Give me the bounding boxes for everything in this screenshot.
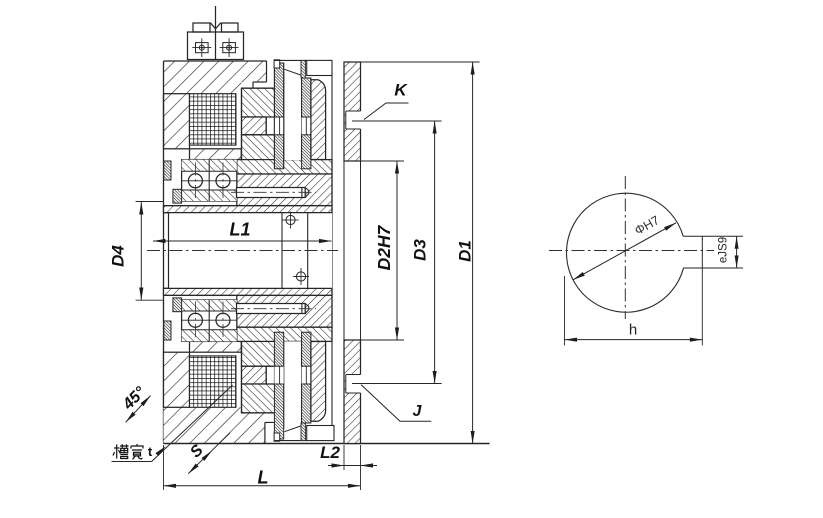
- svg-text:D1: D1: [456, 240, 475, 262]
- svg-text:L: L: [258, 468, 269, 488]
- svg-text:h: h: [629, 322, 637, 339]
- svg-text:D4: D4: [109, 245, 128, 267]
- svg-text:D2H7: D2H7: [374, 224, 394, 270]
- svg-text:K: K: [394, 81, 408, 100]
- svg-text:45°: 45°: [119, 384, 149, 414]
- svg-text:L1: L1: [229, 220, 250, 240]
- svg-text:D3: D3: [411, 239, 430, 261]
- svg-text:L2: L2: [320, 443, 340, 462]
- svg-text:eJS9: eJS9: [718, 237, 730, 263]
- svg-text:ΦH7: ΦH7: [632, 213, 662, 238]
- svg-text:t: t: [148, 444, 153, 459]
- svg-text:J: J: [413, 403, 423, 420]
